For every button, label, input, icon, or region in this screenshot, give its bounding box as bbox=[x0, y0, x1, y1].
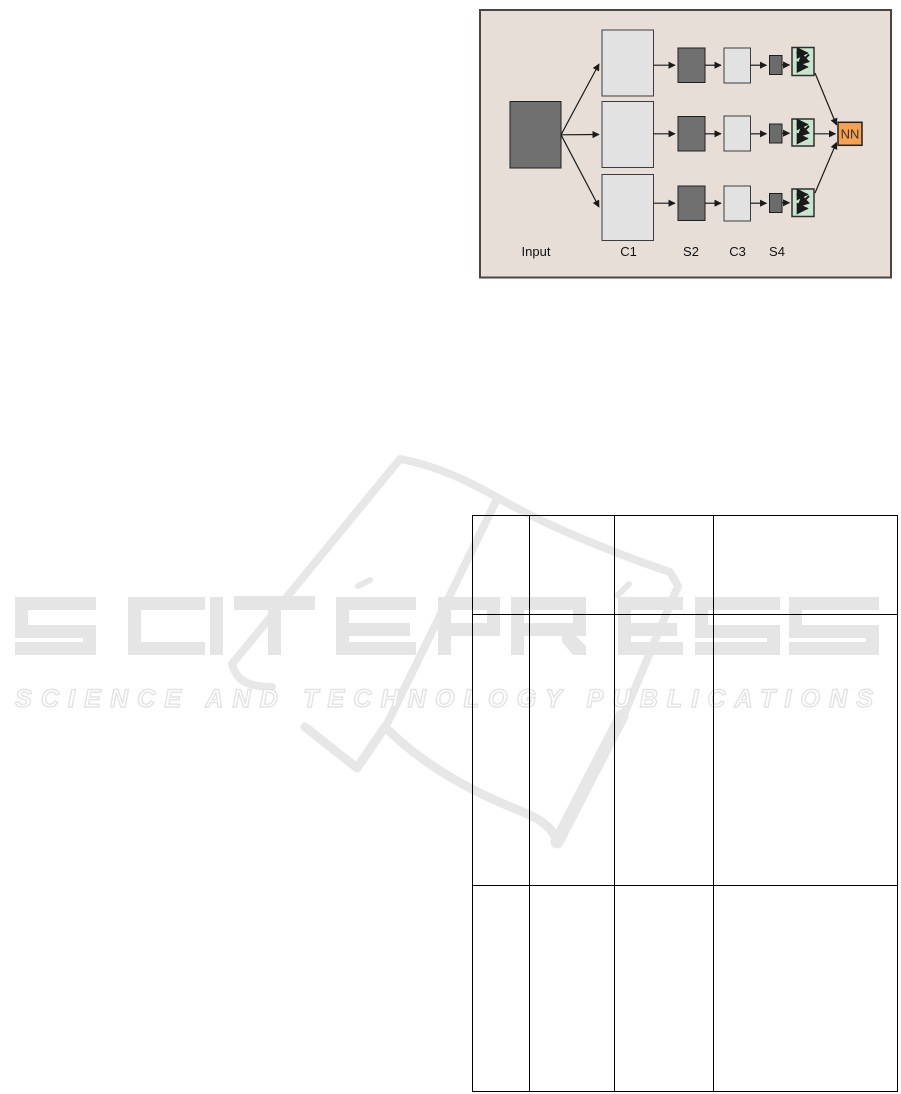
svg-text:S2: S2 bbox=[683, 244, 699, 259]
svg-text:C3: C3 bbox=[729, 244, 746, 259]
svg-text:S4: S4 bbox=[769, 244, 785, 259]
svg-text:C1: C1 bbox=[620, 244, 637, 259]
svg-text:NN: NN bbox=[841, 127, 860, 142]
svg-text:Input: Input bbox=[522, 244, 551, 259]
